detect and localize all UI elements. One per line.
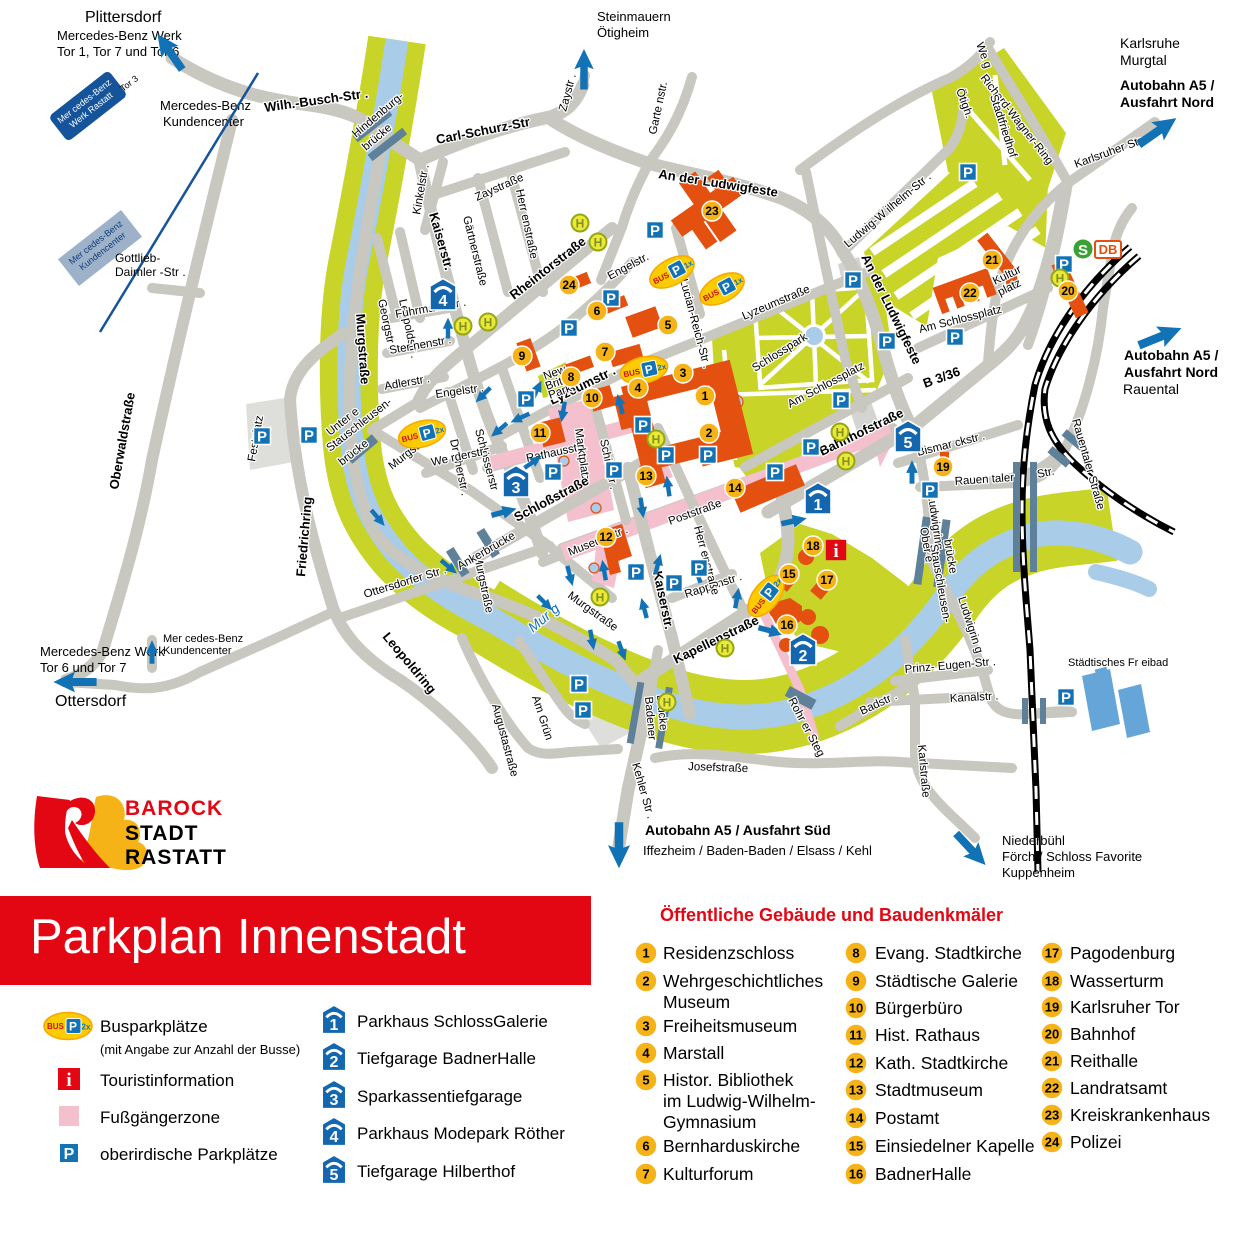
svg-text:20: 20 [1061, 284, 1075, 298]
svg-text:8: 8 [852, 946, 859, 961]
svg-text:20: 20 [1045, 1027, 1059, 1042]
svg-text:16: 16 [780, 618, 794, 632]
svg-text:Gymnasium: Gymnasium [663, 1112, 756, 1132]
svg-text:Polizei: Polizei [1070, 1132, 1122, 1152]
svg-text:Kanalstr .: Kanalstr . [950, 690, 999, 705]
svg-text:4: 4 [439, 293, 448, 310]
svg-text:Tor 6 und Tor 7: Tor 6 und Tor 7 [40, 660, 126, 675]
svg-text:Städtisches Fr eibad: Städtisches Fr eibad [1068, 657, 1168, 669]
svg-text:Freiheitsmuseum: Freiheitsmuseum [663, 1016, 797, 1036]
svg-text:Autobahn A5 / Ausfahrt Süd: Autobahn A5 / Ausfahrt Süd [645, 822, 831, 838]
svg-text:24: 24 [1045, 1135, 1060, 1150]
svg-text:18: 18 [806, 539, 820, 553]
svg-text:9: 9 [519, 349, 526, 363]
svg-text:7: 7 [642, 1167, 649, 1182]
svg-text:Museum: Museum [663, 992, 730, 1012]
svg-text:10: 10 [849, 1001, 863, 1016]
svg-text:18: 18 [1045, 974, 1059, 989]
svg-text:Fußgängerzone: Fußgängerzone [100, 1108, 220, 1127]
svg-text:Bürgerbüro: Bürgerbüro [875, 998, 963, 1018]
svg-text:15: 15 [849, 1139, 863, 1154]
svg-text:Ausfahrt Nord: Ausfahrt Nord [1120, 94, 1214, 110]
svg-text:BadnerHalle: BadnerHalle [875, 1164, 971, 1184]
svg-text:Kuppenheim: Kuppenheim [1002, 865, 1075, 880]
svg-text:5: 5 [904, 435, 913, 452]
svg-text:23: 23 [705, 204, 719, 218]
svg-text:10: 10 [585, 391, 599, 405]
svg-text:Parkplan Innenstadt: Parkplan Innenstadt [30, 910, 466, 964]
svg-text:Ausfahrt Nord: Ausfahrt Nord [1124, 364, 1218, 380]
svg-text:15: 15 [782, 567, 796, 581]
svg-text:DB: DB [1099, 242, 1118, 257]
svg-text:2: 2 [799, 648, 808, 665]
svg-text:Kath. Stadtkirche: Kath. Stadtkirche [875, 1053, 1008, 1073]
svg-text:4: 4 [642, 1046, 650, 1061]
svg-text:2: 2 [642, 974, 649, 989]
svg-text:Murgtal: Murgtal [1120, 52, 1167, 68]
svg-text:Einsiedelner Kapelle: Einsiedelner Kapelle [875, 1136, 1035, 1156]
svg-text:Niederbühl: Niederbühl [1002, 833, 1065, 848]
svg-text:22: 22 [1045, 1081, 1059, 1096]
svg-text:1: 1 [330, 1017, 339, 1034]
svg-text:2: 2 [706, 426, 713, 440]
svg-text:Kreiskrankenhaus: Kreiskrankenhaus [1070, 1105, 1210, 1125]
svg-text:Evang. Stadtkirche: Evang. Stadtkirche [875, 943, 1022, 963]
svg-text:Postamt: Postamt [875, 1108, 939, 1128]
svg-text:Busparkplätze: Busparkplätze [100, 1017, 208, 1036]
svg-text:3: 3 [680, 366, 687, 380]
svg-text:Iffezheim / Baden-Baden / Elsa: Iffezheim / Baden-Baden / Elsass / Kehl [643, 843, 872, 858]
svg-text:Steinmauern: Steinmauern [597, 9, 671, 24]
svg-text:1: 1 [702, 389, 709, 403]
svg-text:2: 2 [330, 1054, 339, 1071]
svg-text:P: P [69, 1020, 77, 1034]
svg-text:Kulturforum: Kulturforum [663, 1164, 753, 1184]
svg-text:17: 17 [1045, 946, 1059, 961]
svg-text:Ottersdorf: Ottersdorf [55, 693, 127, 710]
svg-text:Histor. Bibliothek: Histor. Bibliothek [663, 1070, 794, 1090]
svg-text:Städtische Galerie: Städtische Galerie [875, 971, 1018, 991]
svg-text:im Ludwig-Wilhelm-: im Ludwig-Wilhelm- [663, 1091, 816, 1111]
svg-text:Reithalle: Reithalle [1070, 1051, 1138, 1071]
svg-text:Gottlieb-: Gottlieb- [115, 251, 160, 265]
svg-text:Rauental: Rauental [1123, 381, 1179, 397]
svg-text:19: 19 [936, 460, 950, 474]
svg-text:2x: 2x [82, 1023, 91, 1032]
svg-text:Pagodenburg: Pagodenburg [1070, 943, 1175, 963]
svg-text:Touristinformation: Touristinformation [100, 1071, 234, 1090]
svg-text:19: 19 [1045, 1000, 1059, 1015]
svg-text:11: 11 [849, 1028, 863, 1043]
svg-text:Marstall: Marstall [663, 1043, 724, 1063]
svg-text:Öffentliche Gebäude und Bauden: Öffentliche Gebäude und Baudenkmäler [660, 905, 1003, 925]
svg-text:12: 12 [849, 1056, 863, 1071]
svg-text:(mit Angabe zur Anzahl der Bus: (mit Angabe zur Anzahl der Busse) [100, 1042, 300, 1057]
svg-text:8: 8 [568, 370, 575, 384]
svg-text:22: 22 [963, 286, 977, 300]
svg-text:Parkhaus SchlossGalerie: Parkhaus SchlossGalerie [357, 1012, 548, 1031]
svg-text:Sparkassentiefgarage: Sparkassentiefgarage [357, 1087, 522, 1106]
svg-text:Karlsruher Tor: Karlsruher Tor [1070, 997, 1180, 1017]
svg-text:S: S [1078, 242, 1088, 259]
svg-text:21: 21 [1045, 1054, 1059, 1069]
svg-text:Bernharduskirche: Bernharduskirche [663, 1136, 800, 1156]
svg-text:P: P [64, 1146, 75, 1163]
svg-text:24: 24 [562, 278, 576, 292]
svg-text:Mer cedes-Benz: Mer cedes-Benz [163, 633, 243, 645]
svg-text:21: 21 [985, 253, 999, 267]
svg-text:6: 6 [594, 304, 601, 318]
svg-text:14: 14 [849, 1111, 864, 1126]
svg-text:7: 7 [602, 345, 609, 359]
svg-text:Förch / Schloss Favorite: Förch / Schloss Favorite [1002, 849, 1142, 864]
svg-text:Stadtmuseum: Stadtmuseum [875, 1080, 983, 1100]
svg-text:16: 16 [849, 1167, 863, 1182]
svg-text:1: 1 [814, 497, 823, 514]
svg-text:RASTATT: RASTATT [125, 846, 227, 869]
svg-text:oberirdische Parkplätze: oberirdische Parkplätze [100, 1145, 278, 1164]
svg-text:Wasserturm: Wasserturm [1070, 971, 1164, 991]
svg-text:BAROCK: BAROCK [125, 797, 223, 820]
svg-text:14: 14 [728, 481, 742, 495]
svg-text:Autobahn A5 /: Autobahn A5 / [1124, 347, 1218, 363]
svg-text:17: 17 [820, 573, 834, 587]
svg-text:13: 13 [849, 1083, 863, 1098]
svg-text:1: 1 [642, 946, 649, 961]
svg-text:Tiefgarage Hilberthof: Tiefgarage Hilberthof [357, 1162, 515, 1181]
svg-text:Tiefgarage BadnerHalle: Tiefgarage BadnerHalle [357, 1049, 536, 1068]
svg-text:i: i [66, 1070, 71, 1091]
svg-text:11: 11 [534, 426, 547, 440]
svg-text:Wehrgeschichtliches: Wehrgeschichtliches [663, 971, 823, 991]
svg-text:5: 5 [330, 1167, 339, 1184]
svg-text:Kundencenter: Kundencenter [163, 645, 232, 657]
svg-text:Mercedes-Benz Werk: Mercedes-Benz Werk [40, 644, 165, 659]
svg-text:3: 3 [512, 480, 521, 497]
svg-text:Daimler -Str .: Daimler -Str . [115, 265, 186, 279]
svg-text:Landratsamt: Landratsamt [1070, 1078, 1167, 1098]
svg-text:9: 9 [852, 974, 859, 989]
svg-text:Hist. Rathaus: Hist. Rathaus [875, 1025, 980, 1045]
svg-text:Karlsruhe: Karlsruhe [1120, 35, 1180, 51]
svg-text:12: 12 [599, 530, 613, 544]
svg-text:STADT: STADT [125, 822, 198, 845]
svg-text:3: 3 [330, 1092, 339, 1109]
svg-text:Parkhaus Modepark Röther: Parkhaus Modepark Röther [357, 1124, 565, 1143]
svg-text:13: 13 [639, 469, 653, 483]
svg-text:Bahnhof: Bahnhof [1070, 1024, 1135, 1044]
svg-text:5: 5 [642, 1073, 649, 1088]
svg-text:4: 4 [330, 1129, 339, 1146]
svg-text:5: 5 [665, 318, 672, 332]
svg-text:23: 23 [1045, 1108, 1059, 1123]
svg-text:3: 3 [642, 1019, 649, 1034]
svg-text:6: 6 [642, 1139, 649, 1154]
svg-text:4: 4 [635, 381, 642, 395]
svg-text:Josefstraße: Josefstraße [688, 761, 748, 775]
svg-text:Autobahn A5 /: Autobahn A5 / [1120, 77, 1214, 93]
svg-text:BUS: BUS [47, 1022, 65, 1031]
svg-text:Plittersdorf: Plittersdorf [85, 9, 162, 26]
svg-text:Residenzschloss: Residenzschloss [663, 943, 795, 963]
svg-text:Ötigheim: Ötigheim [597, 25, 649, 40]
